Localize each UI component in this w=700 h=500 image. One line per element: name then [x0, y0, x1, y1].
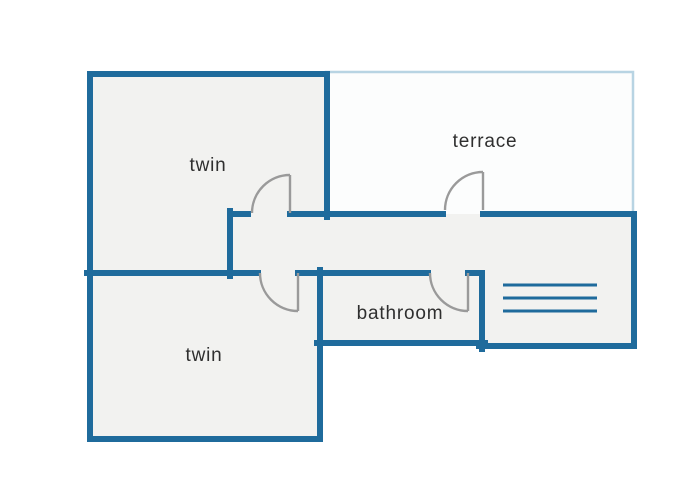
room-fills — [90, 72, 634, 439]
floor-plan: twin terrace twin bathroom — [0, 0, 700, 500]
room-label-twin-top: twin — [190, 155, 227, 176]
room-label-twin-bottom: twin — [186, 345, 223, 366]
floor-plan-svg: twin terrace twin bathroom — [0, 0, 700, 500]
room-label-terrace: terrace — [453, 131, 518, 152]
room-label-bathroom: bathroom — [357, 303, 444, 324]
